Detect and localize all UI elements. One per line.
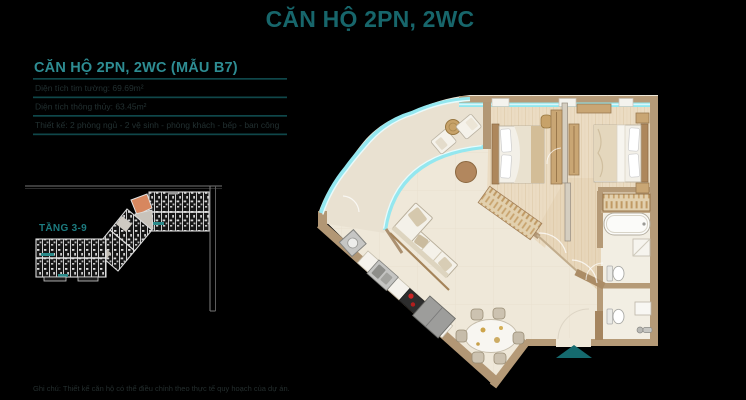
svg-text:Ghi chú: Thiết kế căn hộ có th: Ghi chú: Thiết kế căn hộ có thể điều chỉ… — [33, 384, 290, 393]
svg-text:Diện tích tim tường: 69.69m²: Diện tích tim tường: 69.69m² — [35, 83, 144, 93]
svg-text:TẦNG 3-9: TẦNG 3-9 — [39, 221, 87, 234]
svg-text:CĂN HỘ 2PN, 2WC (MẪU B7): CĂN HỘ 2PN, 2WC (MẪU B7) — [34, 58, 238, 76]
svg-text:Thiết kế: 2 phòng ngủ - 2 vệ s: Thiết kế: 2 phòng ngủ - 2 vệ sinh - phòn… — [35, 120, 280, 130]
svg-text:CĂN HỘ 2PN, 2WC: CĂN HỘ 2PN, 2WC — [266, 5, 475, 32]
svg-text:Diện tích thông thủy: 63.45m²: Diện tích thông thủy: 63.45m² — [35, 102, 147, 112]
